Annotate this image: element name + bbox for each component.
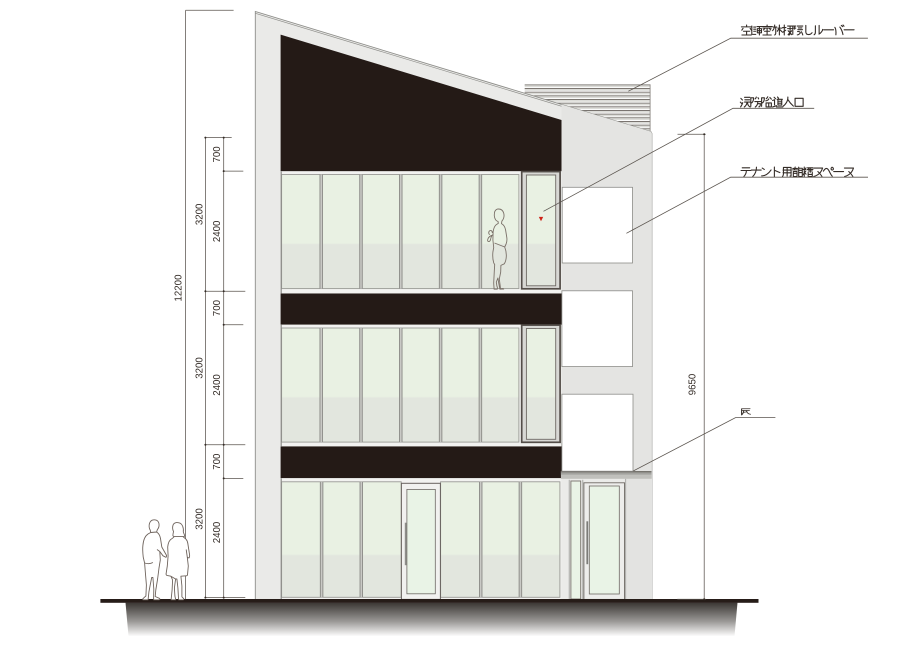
- svg-text:2400: 2400: [212, 521, 223, 543]
- svg-text:700: 700: [212, 453, 223, 470]
- svg-text:9650: 9650: [687, 373, 698, 395]
- svg-text:700: 700: [212, 146, 223, 163]
- svg-text:3200: 3200: [194, 203, 205, 225]
- svg-text:2400: 2400: [212, 220, 223, 242]
- svg-text:3200: 3200: [194, 508, 205, 530]
- svg-text:2400: 2400: [212, 374, 223, 396]
- svg-text:12200: 12200: [173, 274, 184, 302]
- svg-text:3200: 3200: [194, 357, 205, 379]
- svg-text:700: 700: [212, 299, 223, 316]
